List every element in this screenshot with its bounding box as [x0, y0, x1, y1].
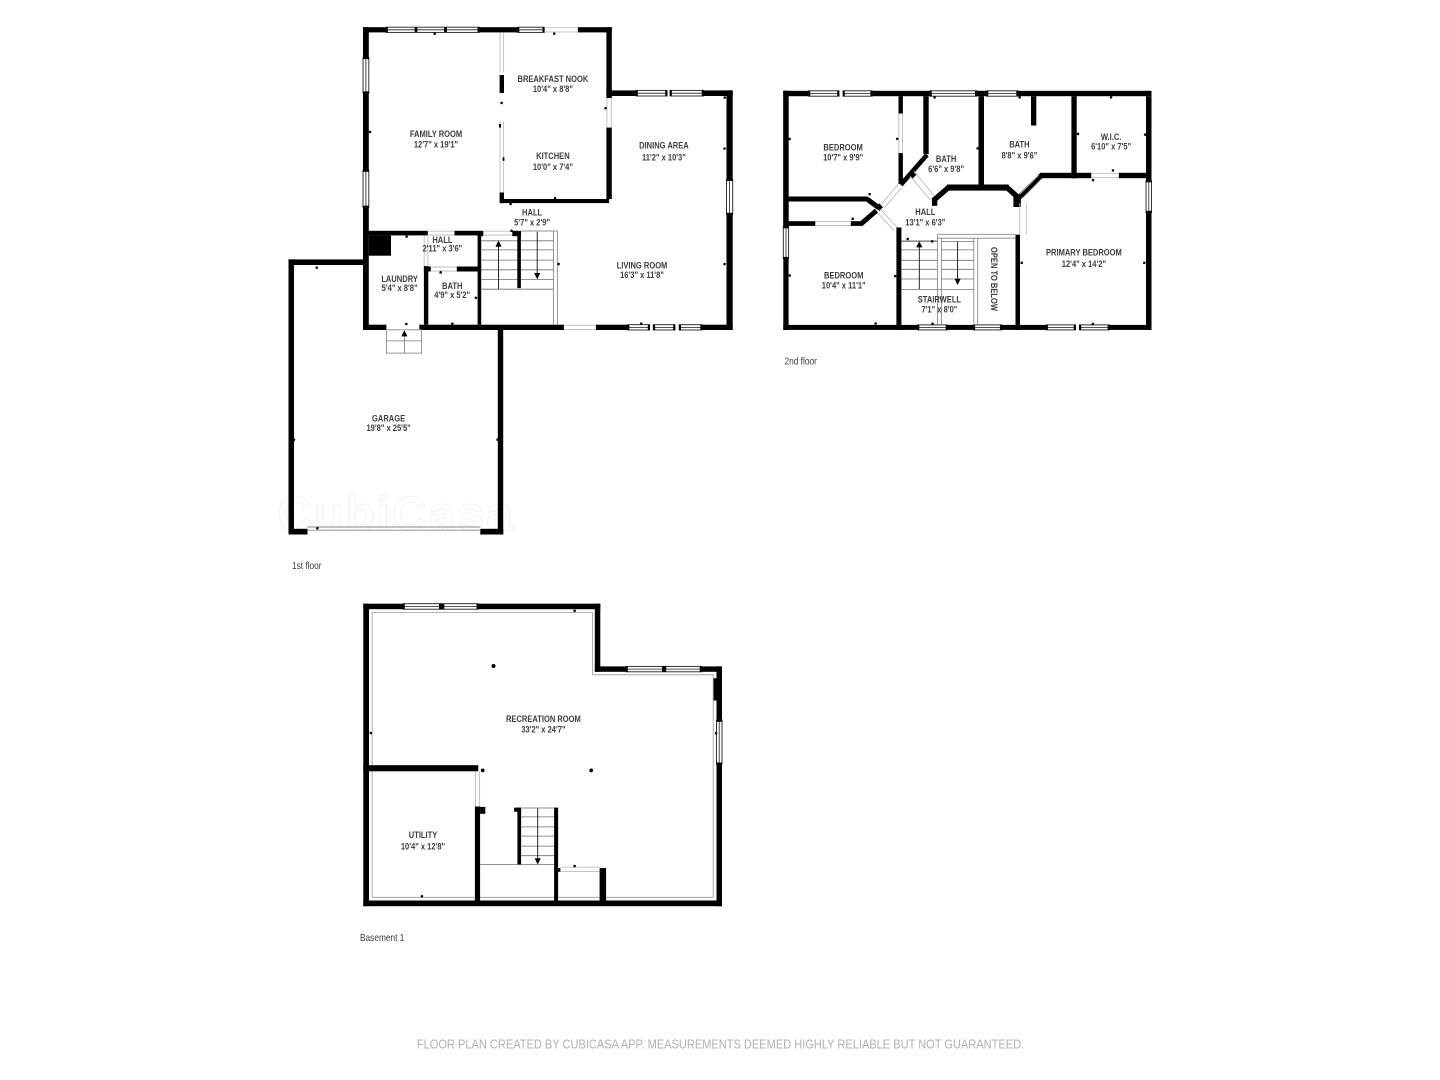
svg-text:6'10" x 7'5": 6'10" x 7'5" [1091, 141, 1131, 152]
svg-text:10'4" x 8'8": 10'4" x 8'8" [533, 83, 573, 94]
svg-text:OPEN TO BELOW: OPEN TO BELOW [989, 247, 1000, 311]
svg-text:8'8" x 9'6": 8'8" x 9'6" [1001, 150, 1037, 161]
svg-text:DINING AREA: DINING AREA [639, 140, 689, 151]
svg-text:5'4" x 8'8": 5'4" x 8'8" [382, 282, 418, 293]
svg-text:11'2" x 10'3": 11'2" x 10'3" [642, 152, 686, 163]
svg-text:10'0" x 7'4": 10'0" x 7'4" [533, 161, 573, 172]
svg-text:FLOOR PLAN CREATED BY CUBICASA: FLOOR PLAN CREATED BY CUBICASA APP. MEAS… [417, 1037, 1024, 1052]
svg-text:13'1" x 6'3": 13'1" x 6'3" [905, 217, 945, 228]
svg-text:10'4" x 11'1": 10'4" x 11'1" [822, 280, 866, 291]
svg-text:Basement 1: Basement 1 [360, 932, 404, 943]
svg-text:33'2" x 24'7": 33'2" x 24'7" [521, 724, 565, 735]
svg-text:4'9" x 5'2": 4'9" x 5'2" [434, 289, 470, 300]
svg-text:PRIMARY BEDROOM: PRIMARY BEDROOM [1046, 247, 1122, 258]
svg-text:BATH: BATH [936, 153, 956, 164]
svg-text:19'8" x 25'5": 19'8" x 25'5" [366, 422, 410, 433]
svg-text:FAMILY ROOM: FAMILY ROOM [410, 128, 462, 139]
svg-text:BATH: BATH [1009, 139, 1029, 150]
svg-text:HALL: HALL [915, 206, 935, 217]
svg-text:BREAKFAST NOOK: BREAKFAST NOOK [518, 73, 589, 84]
svg-text:1st floor: 1st floor [292, 560, 322, 571]
svg-text:16'3" x 11'8": 16'3" x 11'8" [620, 269, 664, 280]
svg-text:CubiCasa: CubiCasa [277, 488, 514, 541]
svg-text:7'1" x 8'0": 7'1" x 8'0" [921, 304, 957, 315]
svg-text:10'7" x 9'9": 10'7" x 9'9" [823, 152, 863, 163]
svg-text:2'11" x 3'6": 2'11" x 3'6" [423, 243, 463, 254]
svg-text:12'4" x 14'2": 12'4" x 14'2" [1062, 258, 1106, 269]
svg-text:BEDROOM: BEDROOM [823, 142, 862, 153]
svg-text:6'6" x 9'8": 6'6" x 9'8" [928, 163, 964, 174]
svg-text:5'7" x 2'9": 5'7" x 2'9" [514, 217, 550, 228]
svg-text:KITCHEN: KITCHEN [536, 150, 570, 161]
svg-text:12'7" x 19'1": 12'7" x 19'1" [414, 139, 458, 150]
svg-text:UTILITY: UTILITY [409, 829, 438, 840]
svg-text:10'4" x 12'8": 10'4" x 12'8" [401, 841, 445, 852]
svg-text:2nd floor: 2nd floor [785, 356, 817, 367]
svg-text:RECREATION ROOM: RECREATION ROOM [506, 713, 581, 724]
